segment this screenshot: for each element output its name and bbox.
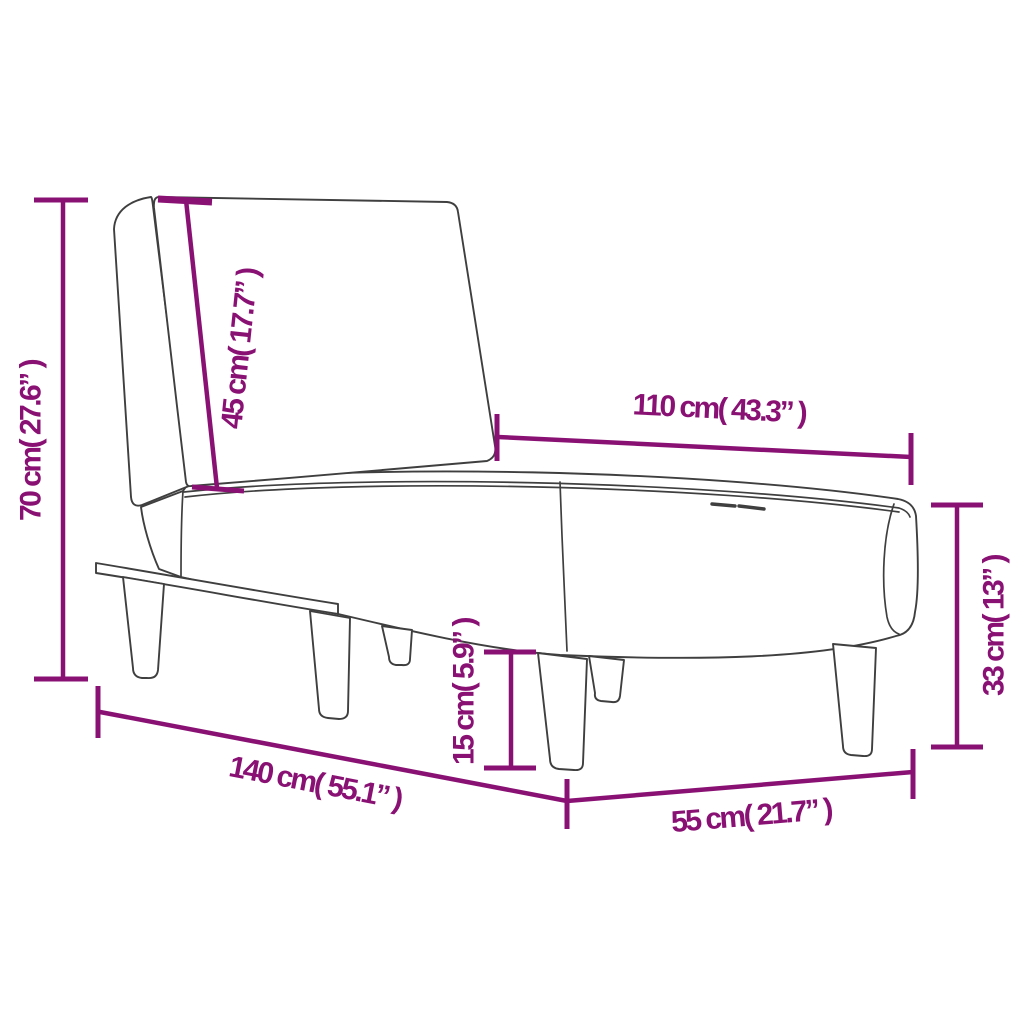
dimension-overall-height: 70 cm( 27.6” ) — [15, 200, 89, 679]
dim-label-seat-height: 33 cm( 13” ) — [978, 554, 1011, 696]
leg-front-right — [538, 653, 587, 770]
leg-shelf — [123, 577, 164, 678]
dim-line — [498, 437, 911, 457]
dim-label-leg-height: 15 cm( 5.9” ) — [448, 618, 481, 765]
dim-label-overall-length: 140 cm( 55.1” ) — [226, 750, 405, 816]
dim-label-overall-width: 55 cm( 21.7” ) — [670, 793, 834, 839]
dimension-seat-height: 33 cm( 13” ) — [931, 505, 1011, 747]
dim-line — [567, 772, 913, 801]
dimension-diagram-page: 70 cm( 27.6” ) 45 cm( 17.7” ) 110 cm( 43… — [0, 0, 1024, 1024]
leg-far-right — [833, 644, 876, 756]
leg-middle-rear — [382, 626, 412, 665]
dim-label-overall-height: 70 cm( 27.6” ) — [15, 359, 48, 521]
seat-body — [141, 471, 918, 657]
dim-label-seat-length: 110 cm( 43.3” ) — [632, 388, 808, 429]
leg-middle — [310, 611, 350, 719]
dim-cap-top — [158, 199, 212, 202]
dimension-overall-width: 55 cm( 21.7” ) — [567, 749, 913, 839]
backrest-front-face — [154, 197, 495, 486]
dimension-seat-length: 110 cm( 43.3” ) — [497, 388, 911, 485]
furniture-drawing — [96, 197, 918, 770]
leg-right-rear — [589, 656, 624, 702]
chaise-longue-dimension-diagram: 70 cm( 27.6” ) 45 cm( 17.7” ) 110 cm( 43… — [0, 0, 1024, 1024]
